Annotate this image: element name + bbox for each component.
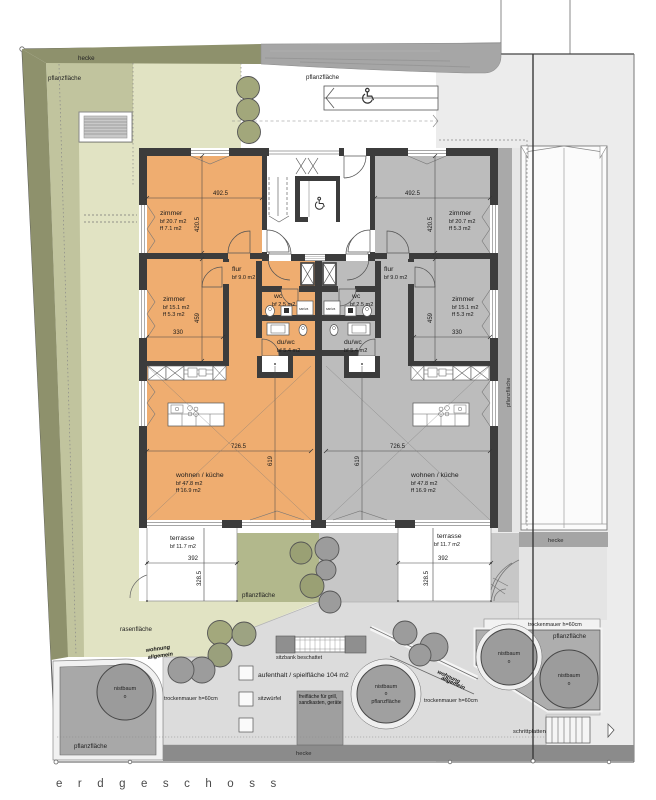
svg-text:o: o bbox=[568, 681, 571, 687]
svg-text:459: 459 bbox=[195, 312, 201, 323]
svg-text:bf 5.4 m2: bf 5.4 m2 bbox=[277, 348, 300, 354]
svg-text:492.5: 492.5 bbox=[213, 191, 229, 197]
svg-text:zimmer: zimmer bbox=[449, 210, 472, 217]
svg-text:bf 9.0 m2: bf 9.0 m2 bbox=[384, 275, 407, 281]
svg-text:726.5: 726.5 bbox=[390, 444, 406, 450]
svg-text:392: 392 bbox=[188, 556, 199, 562]
svg-text:o: o bbox=[385, 691, 388, 697]
svg-text:bf 11.7 m2: bf 11.7 m2 bbox=[170, 544, 196, 550]
svg-text:erdgeschoss: erdgeschoss bbox=[56, 778, 292, 790]
svg-text:aufenthalt / spielfläche 104 m: aufenthalt / spielfläche 104 m2 bbox=[258, 672, 349, 679]
svg-text:wohnen / küche: wohnen / küche bbox=[175, 472, 224, 479]
svg-text:bf 15.1 m2: bf 15.1 m2 bbox=[452, 305, 478, 311]
svg-text:flur: flur bbox=[232, 266, 242, 273]
svg-text:420.5: 420.5 bbox=[428, 216, 434, 232]
svg-text:ff 16.9 m2: ff 16.9 m2 bbox=[411, 488, 436, 494]
svg-text:terrasse: terrasse bbox=[170, 535, 195, 542]
svg-text:328.5: 328.5 bbox=[197, 570, 203, 586]
svg-text:bf 2.5 m2: bf 2.5 m2 bbox=[272, 302, 295, 308]
svg-text:wc: wc bbox=[351, 293, 361, 300]
svg-text:bf 11.7 m2: bf 11.7 m2 bbox=[434, 542, 460, 548]
svg-text:bf 9.0 m2: bf 9.0 m2 bbox=[232, 275, 255, 281]
svg-text:726.5: 726.5 bbox=[231, 444, 247, 450]
svg-text:bf 20.7 m2: bf 20.7 m2 bbox=[160, 219, 186, 225]
svg-text:pflanzfläche: pflanzfläche bbox=[553, 633, 587, 640]
svg-text:saniva: saniva bbox=[299, 307, 308, 311]
svg-text:rasenfläche: rasenfläche bbox=[120, 626, 153, 633]
svg-text:pflanzfläche: pflanzfläche bbox=[506, 378, 512, 407]
svg-text:trockenmauer h=60cm: trockenmauer h=60cm bbox=[164, 696, 218, 702]
svg-text:ff 7.1 m2: ff 7.1 m2 bbox=[160, 226, 182, 232]
svg-text:bf 20.7 m2: bf 20.7 m2 bbox=[449, 219, 475, 225]
svg-text:o: o bbox=[508, 659, 511, 665]
svg-text:nistbaum: nistbaum bbox=[375, 684, 398, 690]
svg-text:zimmer: zimmer bbox=[163, 296, 186, 303]
svg-text:sitzwürfel: sitzwürfel bbox=[258, 696, 281, 702]
svg-text:bf 47.8 m2: bf 47.8 m2 bbox=[176, 481, 202, 487]
svg-text:bf 2.5 m2: bf 2.5 m2 bbox=[350, 302, 373, 308]
svg-text:trockenmauer h=60cm: trockenmauer h=60cm bbox=[424, 698, 478, 704]
svg-text:trockenmauer h=60cm: trockenmauer h=60cm bbox=[528, 622, 582, 628]
svg-text:pflanzfläche: pflanzfläche bbox=[48, 75, 82, 82]
svg-text:sitzbank beschattet: sitzbank beschattet bbox=[276, 655, 323, 661]
svg-text:328.5: 328.5 bbox=[424, 570, 430, 586]
svg-text:flur: flur bbox=[384, 266, 394, 273]
svg-text:ff 16.9 m2: ff 16.9 m2 bbox=[176, 488, 201, 494]
svg-text:nistbaum: nistbaum bbox=[558, 673, 581, 679]
svg-text:bf 15.1 m2: bf 15.1 m2 bbox=[163, 305, 189, 311]
svg-text:pflanzfläche: pflanzfläche bbox=[242, 592, 276, 599]
svg-text:ff 5.3 m2: ff 5.3 m2 bbox=[452, 312, 474, 318]
svg-text:619: 619 bbox=[355, 455, 361, 466]
svg-text:sandkasten, geräte: sandkasten, geräte bbox=[299, 700, 342, 706]
svg-text:du/wc: du/wc bbox=[344, 339, 362, 346]
svg-text:schrittplatten: schrittplatten bbox=[513, 729, 546, 735]
svg-text:ff 5.3 m2: ff 5.3 m2 bbox=[449, 226, 471, 232]
svg-text:bf 5.4 m2: bf 5.4 m2 bbox=[344, 348, 367, 354]
svg-text:392: 392 bbox=[438, 556, 449, 562]
svg-text:zimmer: zimmer bbox=[160, 210, 183, 217]
svg-text:459: 459 bbox=[428, 312, 434, 323]
svg-text:du/wc: du/wc bbox=[277, 339, 295, 346]
svg-text:hecke: hecke bbox=[548, 538, 563, 544]
svg-text:hecke: hecke bbox=[78, 55, 95, 62]
svg-text:420.5: 420.5 bbox=[195, 216, 201, 232]
svg-text:o: o bbox=[124, 694, 127, 700]
svg-text:330: 330 bbox=[452, 330, 463, 336]
svg-text:nistbaum: nistbaum bbox=[114, 686, 137, 692]
svg-text:pflanzfläche: pflanzfläche bbox=[371, 699, 400, 705]
svg-text:619: 619 bbox=[268, 455, 274, 466]
svg-text:nistbaum: nistbaum bbox=[498, 651, 521, 657]
svg-text:zimmer: zimmer bbox=[452, 296, 475, 303]
svg-text:wohnen / küche: wohnen / küche bbox=[410, 472, 459, 479]
svg-text:saniva: saniva bbox=[326, 307, 335, 311]
svg-text:492.5: 492.5 bbox=[405, 191, 421, 197]
svg-text:pflanzfläche: pflanzfläche bbox=[74, 743, 108, 750]
svg-text:330: 330 bbox=[173, 330, 184, 336]
svg-text:ff 5.3 m2: ff 5.3 m2 bbox=[163, 312, 185, 318]
svg-text:pflanzfläche: pflanzfläche bbox=[306, 74, 340, 81]
svg-text:wc: wc bbox=[273, 293, 283, 300]
svg-text:terrasse: terrasse bbox=[437, 533, 462, 540]
svg-text:bf 47.8 m2: bf 47.8 m2 bbox=[411, 481, 437, 487]
svg-text:hecke: hecke bbox=[296, 751, 311, 757]
